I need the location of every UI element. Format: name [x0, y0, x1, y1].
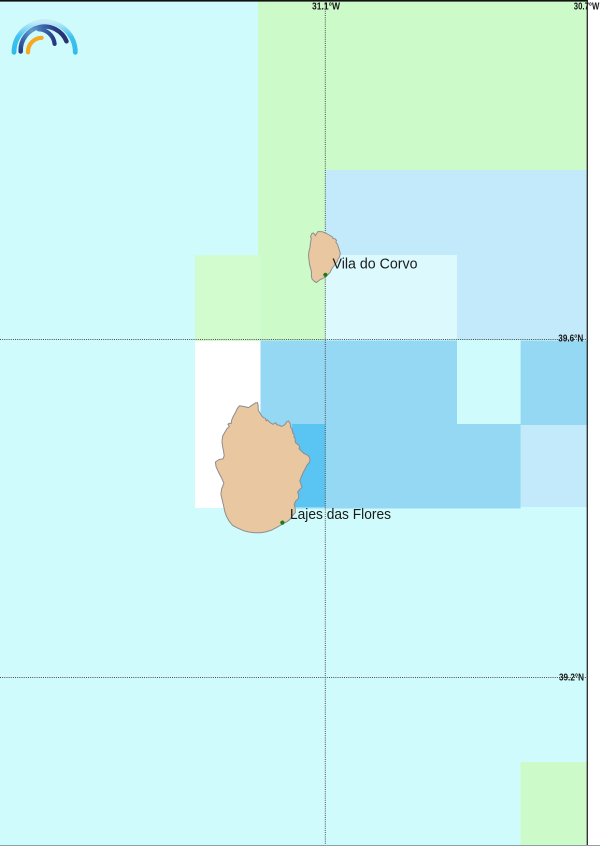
svg-text:Vila do Corvo: Vila do Corvo [333, 257, 418, 273]
svg-text:31.1°W: 31.1°W [312, 2, 341, 13]
svg-text:Lajes das Flores: Lajes das Flores [290, 507, 391, 523]
svg-text:30.7°W: 30.7°W [574, 2, 600, 13]
svg-text:39.6°N: 39.6°N [558, 334, 583, 345]
svg-text:39.2°N: 39.2°N [559, 672, 584, 683]
